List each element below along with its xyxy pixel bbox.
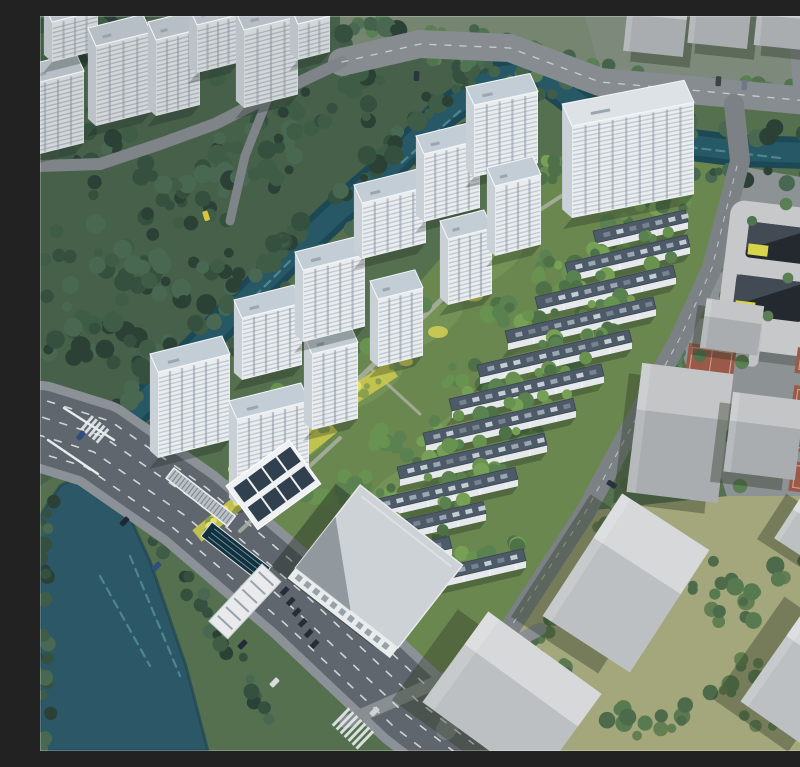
context-block [623, 16, 696, 68]
rendering-canvas [40, 16, 800, 751]
context-block [691, 298, 764, 362]
residential-tower [369, 270, 423, 378]
residential-tower [294, 237, 365, 354]
context-tower [235, 16, 298, 119]
car [715, 76, 721, 86]
context-block [687, 16, 759, 60]
residential-tower [562, 80, 694, 229]
aerial-masterplan-rendering [40, 16, 800, 751]
context-tower [87, 16, 151, 137]
residential-tower [439, 210, 492, 316]
car [741, 80, 747, 90]
context-block [710, 392, 800, 491]
car [414, 71, 420, 81]
residential-tower [233, 285, 302, 391]
residential-tower [486, 157, 541, 268]
yellow-planting [428, 326, 448, 338]
residential-tower [149, 336, 230, 469]
